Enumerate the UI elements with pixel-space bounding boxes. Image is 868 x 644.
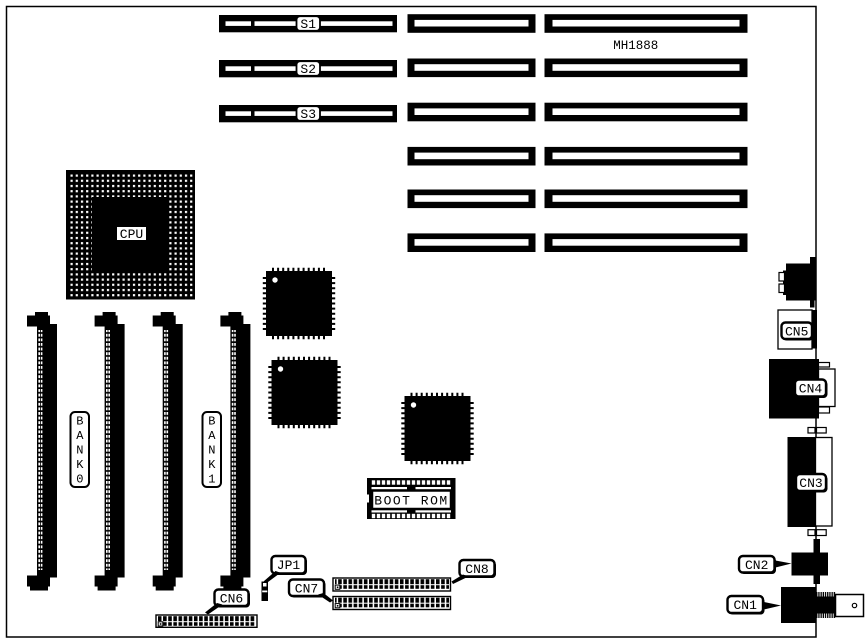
svg-text:S3: S3 <box>300 107 316 122</box>
svg-text:A: A <box>76 429 84 443</box>
svg-text:N: N <box>208 444 215 458</box>
svg-text:CN2: CN2 <box>745 558 768 573</box>
svg-text:N: N <box>76 444 83 458</box>
svg-text:1: 1 <box>208 473 215 487</box>
svg-text:B: B <box>76 415 83 429</box>
svg-text:CN6: CN6 <box>220 591 243 606</box>
svg-text:A: A <box>208 429 216 443</box>
svg-text:CPU: CPU <box>120 227 143 242</box>
svg-text:CN4: CN4 <box>799 382 823 397</box>
svg-text:K: K <box>208 458 216 472</box>
svg-text:S2: S2 <box>300 62 316 77</box>
svg-text:CN3: CN3 <box>799 476 822 491</box>
svg-text:MH1888: MH1888 <box>613 39 658 53</box>
svg-text:CN8: CN8 <box>465 562 488 577</box>
svg-text:CN7: CN7 <box>295 581 318 596</box>
svg-text:0: 0 <box>76 473 83 487</box>
svg-text:S1: S1 <box>300 17 316 32</box>
svg-text:CN5: CN5 <box>785 324 808 339</box>
svg-text:K: K <box>76 458 84 472</box>
svg-text:BOOT ROM: BOOT ROM <box>374 494 448 509</box>
svg-text:B: B <box>208 415 215 429</box>
svg-text:JP1: JP1 <box>277 558 301 573</box>
svg-text:CN1: CN1 <box>733 598 757 613</box>
